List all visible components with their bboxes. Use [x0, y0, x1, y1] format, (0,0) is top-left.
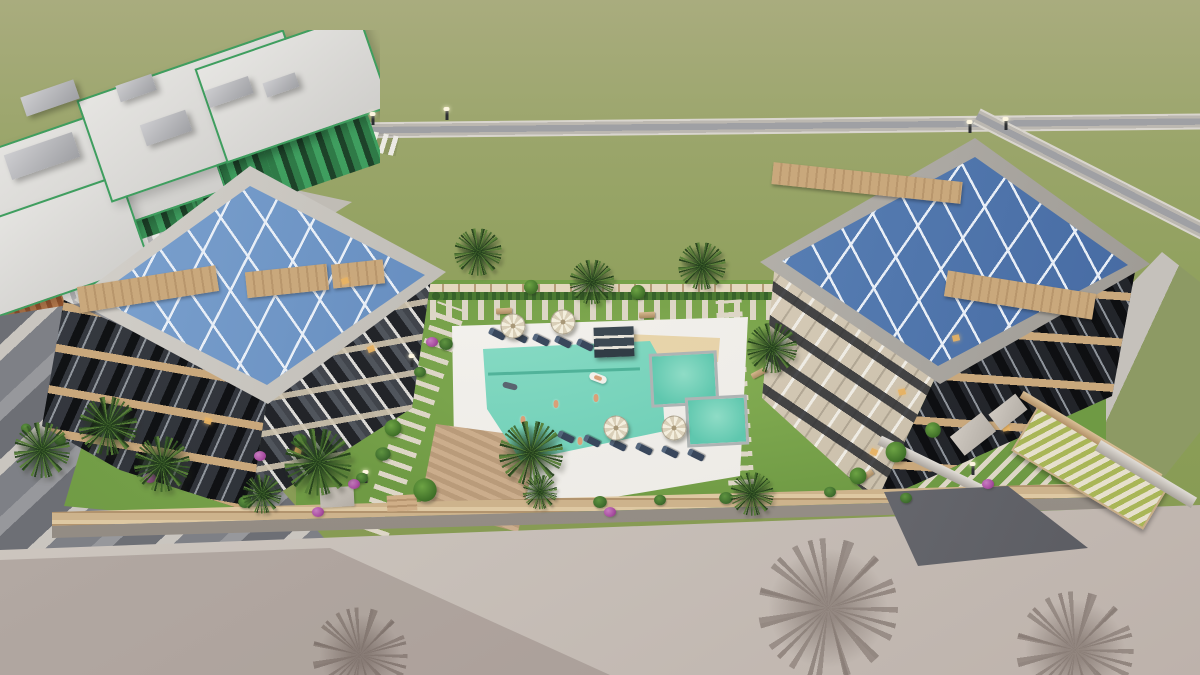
hedge-top	[428, 292, 776, 300]
perimeter-fence-top	[428, 284, 776, 292]
aerial-render-scene	[0, 0, 1200, 675]
kids-pool-lower	[685, 394, 750, 447]
pool-cabana	[593, 326, 634, 357]
rooftop-box	[20, 79, 79, 116]
